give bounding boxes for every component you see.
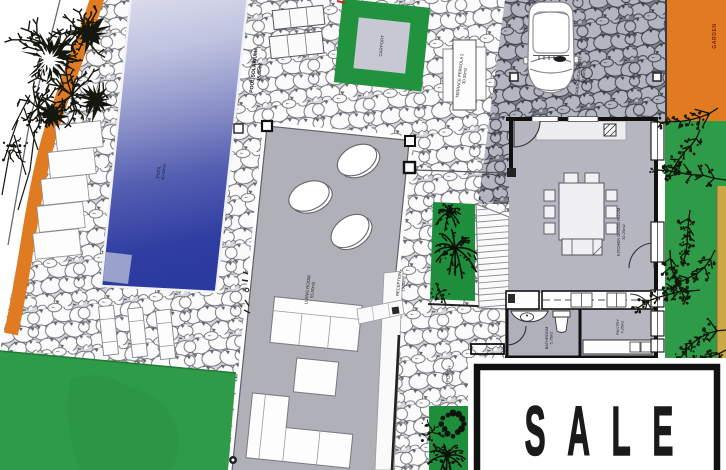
svg-text:4.25m2: 4.25m2 [621,321,625,334]
svg-text:SALE: SALE [525,392,695,470]
svg-text:PANTRY: PANTRY [615,319,620,335]
svg-text:BATHROOM: BATHROOM [544,327,549,350]
svg-text:32.25m2: 32.25m2 [621,223,626,239]
svg-text:GARDEN: GARDEN [712,23,718,48]
svg-text:5.75m2: 5.75m2 [550,332,554,345]
